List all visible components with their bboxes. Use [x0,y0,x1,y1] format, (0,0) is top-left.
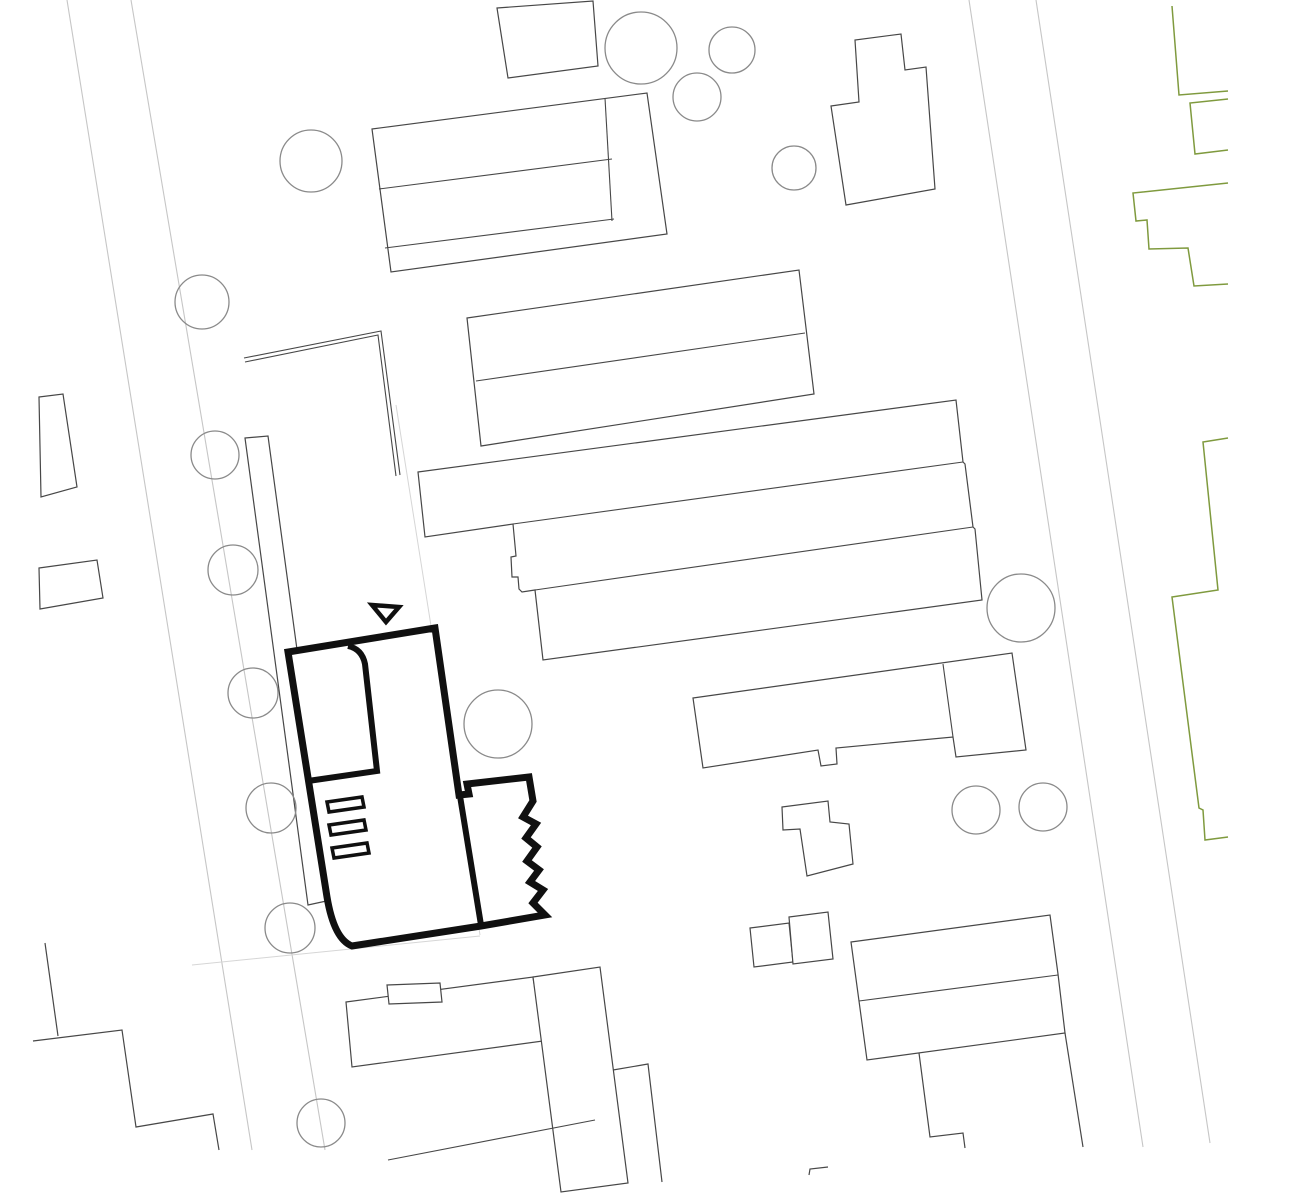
tree [1019,783,1067,831]
street-edge-left-inner [131,0,325,1150]
tree [987,574,1055,642]
building-south-tall-slab [533,967,628,1192]
tree [208,545,258,595]
tree [191,431,239,479]
building-south-bar [346,977,543,1067]
tree [709,27,755,73]
entrance-arrow [372,605,399,622]
street-edge-right-outer [1036,0,1210,1143]
building-east-bar-with-tower [693,653,1026,768]
tree [952,786,1000,834]
green-boundary-segment-2 [1190,99,1228,154]
green-boundary-segment-1 [1172,6,1228,95]
building-south-bar-attachment [387,983,442,1004]
main-building-outline [288,628,545,946]
tree [280,130,342,192]
building-southeast-slab [851,915,1065,1060]
building-small-l-shape [782,801,853,876]
tree [228,668,278,718]
tree [605,12,677,84]
green-boundary-segment-4 [1172,438,1228,840]
building-center-bar-pair [467,270,814,446]
tree [246,783,296,833]
building-top-edge-small [497,1,598,78]
building-twin-square-east [789,912,833,964]
building-west-small-upper [39,394,77,497]
tree [464,690,532,758]
site-plan-canvas [0,0,1297,1200]
building-southwest-step-1 [45,943,58,1036]
building-northeast-stepped [831,34,935,205]
building-southeast-lower-step [919,1053,965,1148]
tree [175,275,229,329]
building-southeast-lower-edge [1065,1033,1083,1147]
building-southwest-step-2 [33,1030,219,1150]
green-boundary-segment-3 [1133,183,1228,286]
small-mark-south [809,1167,828,1175]
parcel-boundary-south [192,936,480,965]
building-twin-square-west [750,923,793,967]
tree [772,146,816,190]
layer-greenery-boundaries [1133,6,1228,840]
tree [673,73,721,121]
site-plan-viewer [0,0,1297,1200]
building-west-small-lower [39,560,103,609]
building-north-long-block [372,93,667,272]
layer-main-building [288,605,545,946]
layer-context-buildings [33,1,1083,1192]
